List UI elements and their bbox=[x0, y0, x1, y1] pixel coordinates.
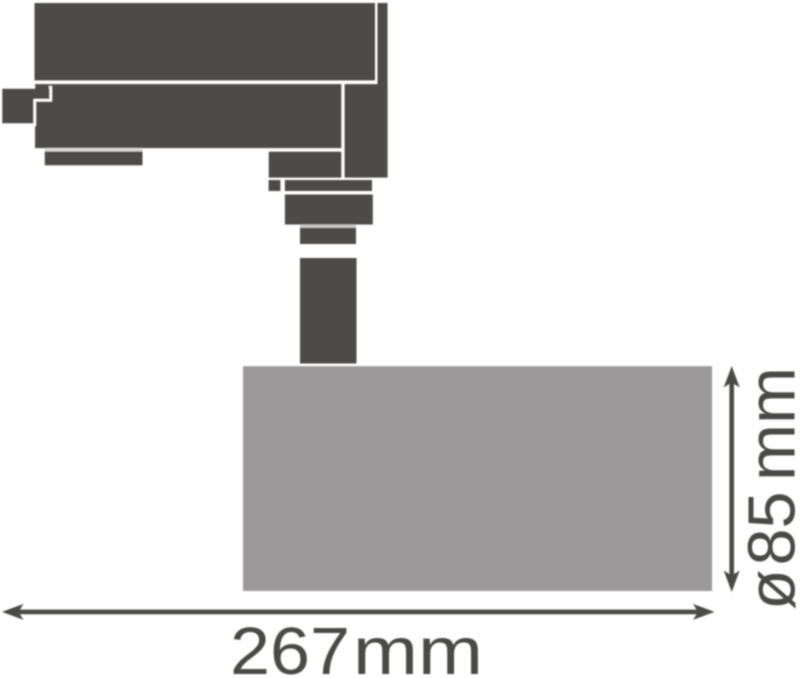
svg-text:267: 267 bbox=[230, 615, 350, 678]
svg-text:ø: ø bbox=[736, 569, 800, 610]
svg-text:mm: mm bbox=[353, 615, 483, 678]
svg-text:mm: mm bbox=[736, 367, 800, 481]
svg-text:85: 85 bbox=[736, 492, 800, 566]
